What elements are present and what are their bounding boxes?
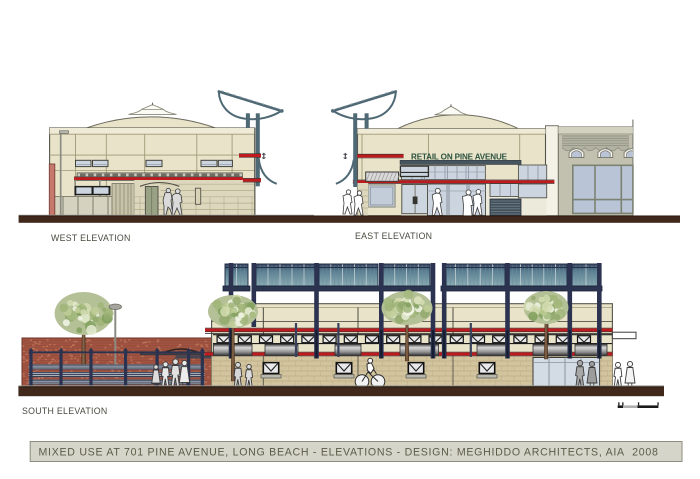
svg-text:EAST ELEVATION: EAST ELEVATION: [355, 231, 432, 241]
svg-text:WEST ELEVATION: WEST ELEVATION: [51, 233, 131, 243]
svg-text:MIXED USE AT 701 PINE AVENUE,: MIXED USE AT 701 PINE AVENUE, LONG BEACH…: [39, 447, 659, 459]
svg-text:SOUTH ELEVATION: SOUTH ELEVATION: [22, 406, 108, 416]
